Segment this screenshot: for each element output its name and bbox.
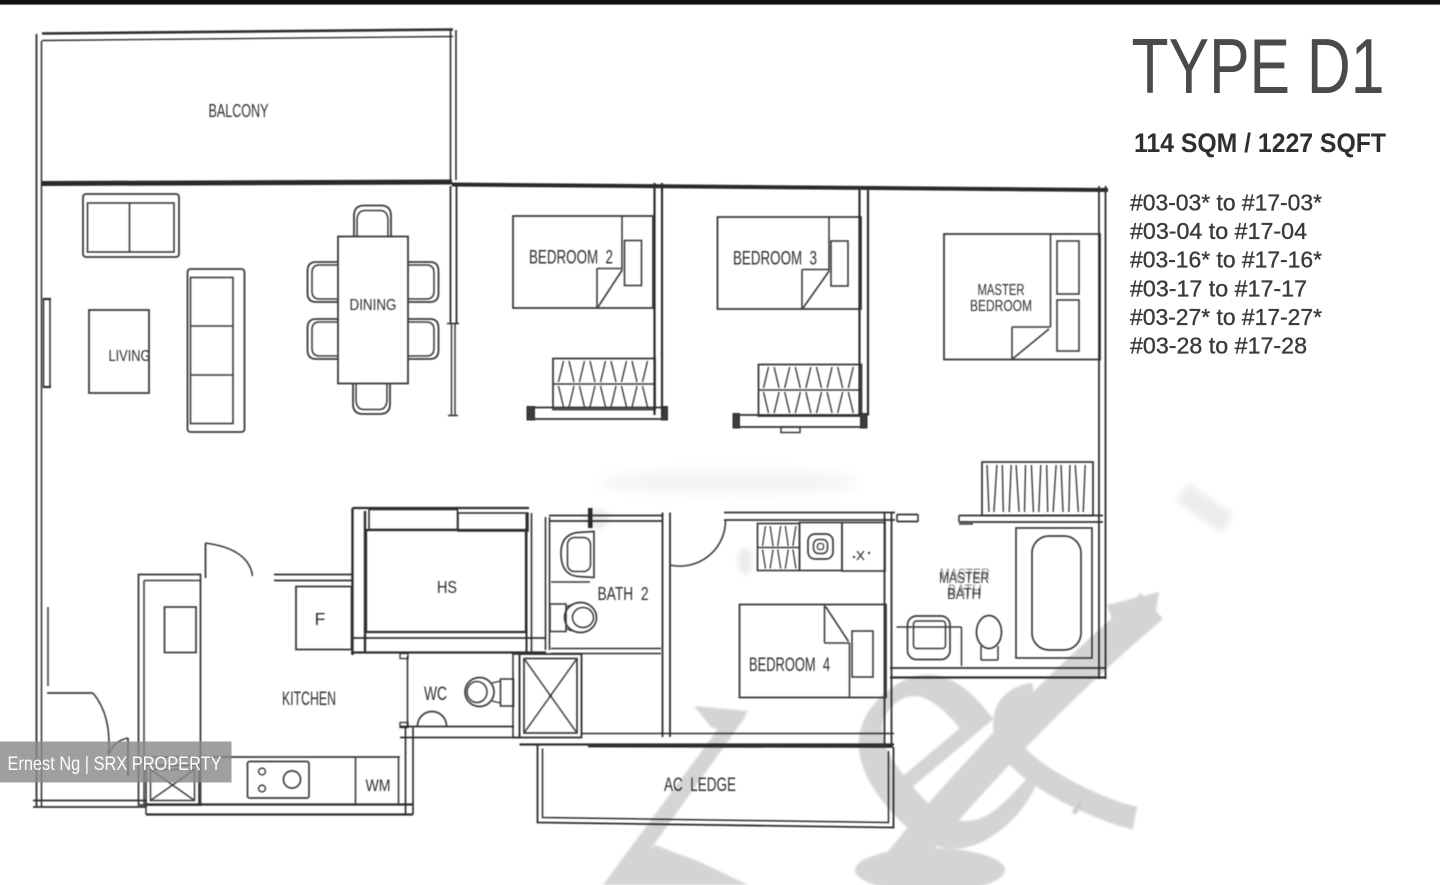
svg-text:BEDROOM 3: BEDROOM 3 bbox=[733, 248, 817, 270]
svg-text:BATH: BATH bbox=[948, 583, 982, 600]
svg-text:BATH 2: BATH 2 bbox=[598, 583, 649, 604]
svg-text:114 SQM / 1227 SQFT: 114 SQM / 1227 SQFT bbox=[1134, 128, 1386, 158]
svg-text:#03-04 to #17-04: #03-04 to #17-04 bbox=[1130, 218, 1307, 244]
svg-text:WM: WM bbox=[366, 776, 391, 795]
svg-text:#03-28 to #17-28: #03-28 to #17-28 bbox=[1130, 333, 1307, 359]
svg-text:BEDROOM 2: BEDROOM 2 bbox=[529, 247, 613, 269]
svg-text:HS: HS bbox=[437, 577, 457, 597]
svg-text:BEDROOM: BEDROOM bbox=[970, 298, 1032, 315]
svg-text:MASTER: MASTER bbox=[940, 567, 990, 584]
svg-text:F: F bbox=[315, 609, 326, 629]
svg-text:BALCONY: BALCONY bbox=[209, 101, 269, 121]
svg-text:Ernest Ng | SRX PROPERTY: Ernest Ng | SRX PROPERTY bbox=[8, 754, 222, 775]
svg-text:LIVING: LIVING bbox=[109, 348, 151, 365]
svg-text:KITCHEN: KITCHEN bbox=[282, 689, 336, 710]
svg-text:AC LEDGE: AC LEDGE bbox=[664, 775, 736, 796]
svg-text:BEDROOM 4: BEDROOM 4 bbox=[749, 654, 830, 676]
svg-text:#03-27* to #17-27*: #03-27* to #17-27* bbox=[1130, 304, 1322, 330]
svg-text:DINING: DINING bbox=[350, 297, 397, 314]
svg-text:MASTER: MASTER bbox=[978, 282, 1025, 299]
svg-text:TYPE D1: TYPE D1 bbox=[1132, 22, 1385, 110]
svg-text:#03-03* to #17-03*: #03-03* to #17-03* bbox=[1130, 190, 1322, 216]
svg-text:WC: WC bbox=[424, 684, 447, 705]
svg-text:#03-16* to #17-16*: #03-16* to #17-16* bbox=[1130, 247, 1322, 273]
svg-text:#03-17 to #17-17: #03-17 to #17-17 bbox=[1130, 275, 1307, 301]
